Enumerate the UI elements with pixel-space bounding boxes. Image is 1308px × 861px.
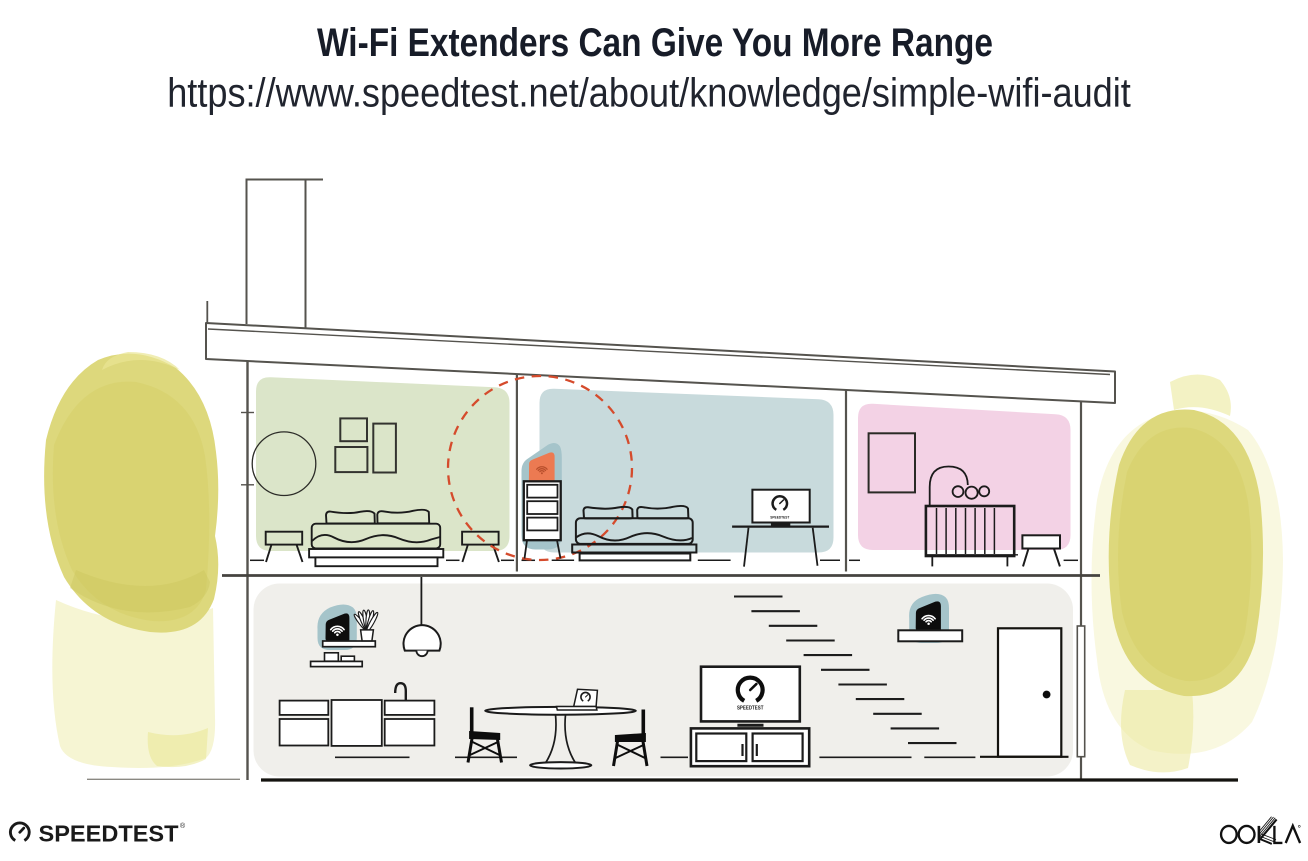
svg-text:SPEEDTEST: SPEEDTEST — [737, 706, 764, 712]
svg-text:https://www.speedtest.net/abou: https://www.speedtest.net/about/knowledg… — [167, 70, 1131, 116]
svg-text:SPEEDTEST: SPEEDTEST — [39, 821, 180, 847]
svg-text:®: ® — [180, 822, 186, 830]
svg-text:SPEEDTEST: SPEEDTEST — [770, 516, 790, 520]
svg-text:Wi-Fi Extenders Can Give You M: Wi-Fi Extenders Can Give You More Range — [317, 20, 993, 65]
